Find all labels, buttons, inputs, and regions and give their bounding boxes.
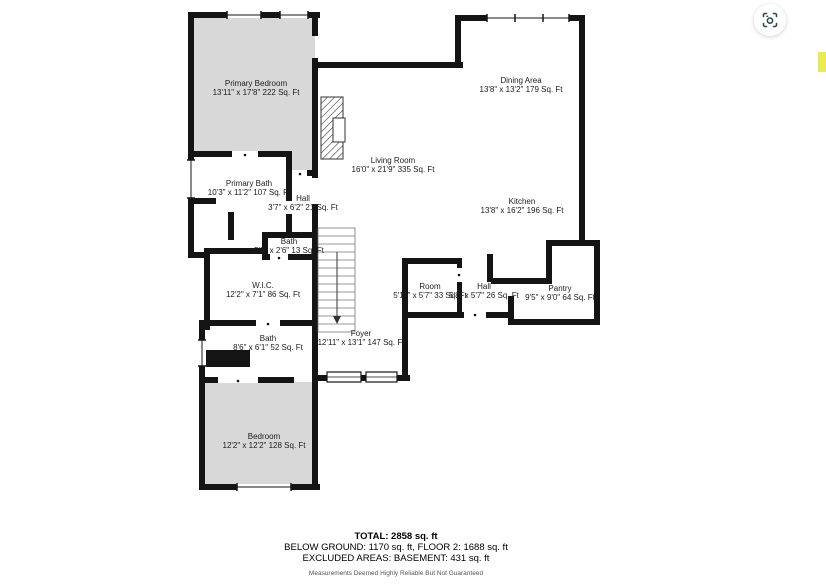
floor-areas-text: BELOW GROUND: 1170 sq. ft, FLOOR 2: 1688…	[284, 542, 508, 553]
room-name: Primary Bedroom	[213, 79, 300, 88]
room-dims: 13'11" x 17'8" 222 Sq. Ft	[213, 88, 300, 97]
room-name: Bath	[254, 237, 324, 246]
room-dims: 16'0" x 21'9" 335 Sq. Ft	[351, 165, 434, 174]
room-name: Hall	[268, 194, 338, 203]
room-dims: 5'3" x 2'6" 13 Sq. Ft	[254, 246, 324, 255]
room-dims: 12'11" x 13'1" 147 Sq. Ft	[318, 338, 405, 347]
disclaimer-text: Measurements Deemed Highly Reliable But …	[284, 570, 508, 578]
camera-viewfinder-icon	[761, 11, 779, 29]
room-dims: 13'8" x 13'2" 179 Sq. Ft	[479, 85, 562, 94]
room-name: Hall	[449, 282, 519, 291]
room-dims: 3'7" x 6'2" 21 Sq. Ft	[268, 203, 338, 212]
excluded-areas-text: EXCLUDED AREAS: BASEMENT: 431 sq. ft	[284, 553, 508, 564]
room-name: Dining Area	[479, 76, 562, 85]
room-label-living-room: Living Room 16'0" x 21'9" 335 Sq. Ft	[351, 156, 434, 174]
room-name: Bedroom	[222, 432, 305, 441]
room-dims: 9'5" x 9'0" 64 Sq. Ft	[525, 293, 595, 302]
room-label-wic: W.I.C. 12'2" x 7'1" 86 Sq. Ft	[226, 281, 300, 299]
room-label-bedroom: Bedroom 12'2" x 12'2" 128 Sq. Ft	[222, 432, 305, 450]
room-label-primary-bedroom: Primary Bedroom 13'11" x 17'8" 222 Sq. F…	[213, 79, 300, 97]
room-name: Kitchen	[480, 197, 563, 206]
fireplace-icon	[321, 97, 345, 159]
room-label-foyer: Foyer 12'11" x 13'1" 147 Sq. Ft	[318, 329, 405, 347]
room-dims: 12'2" x 12'2" 128 Sq. Ft	[222, 441, 305, 450]
room-dims: 8'6" x 6'1" 52 Sq. Ft	[233, 343, 303, 352]
room-label-bath-lower: Bath 8'6" x 6'1" 52 Sq. Ft	[233, 334, 303, 352]
room-label-kitchen: Kitchen 13'8" x 16'2" 196 Sq. Ft	[480, 197, 563, 215]
room-label-dining-area: Dining Area 13'8" x 13'2" 179 Sq. Ft	[479, 76, 562, 94]
room-name: Bath	[233, 334, 303, 343]
room-dims: 5'8" x 5'7" 26 Sq. Ft	[449, 291, 519, 300]
area-summary: TOTAL: 2858 sq. ft BELOW GROUND: 1170 sq…	[284, 531, 508, 578]
room-dims: 12'2" x 7'1" 86 Sq. Ft	[226, 290, 300, 299]
room-label-pantry: Pantry 9'5" x 9'0" 64 Sq. Ft	[525, 284, 595, 302]
room-dims: 13'8" x 16'2" 196 Sq. Ft	[480, 206, 563, 215]
total-area-text: TOTAL: 2858 sq. ft	[284, 531, 508, 542]
room-name: W.I.C.	[226, 281, 300, 290]
room-label-hall-upper: Hall 3'7" x 6'2" 21 Sq. Ft	[268, 194, 338, 212]
camera-button[interactable]	[754, 4, 786, 36]
floorplan-page: Primary Bedroom 13'11" x 17'8" 222 Sq. F…	[0, 0, 826, 587]
room-name: Pantry	[525, 284, 595, 293]
room-name: Foyer	[318, 329, 405, 338]
room-name: Primary Bath	[208, 179, 290, 188]
room-name: Living Room	[351, 156, 434, 165]
room-label-hall-lower: Hall 5'8" x 5'7" 26 Sq. Ft	[449, 282, 519, 300]
highlight-marker	[818, 52, 826, 72]
room-label-bath-small: Bath 5'3" x 2'6" 13 Sq. Ft	[254, 237, 324, 255]
